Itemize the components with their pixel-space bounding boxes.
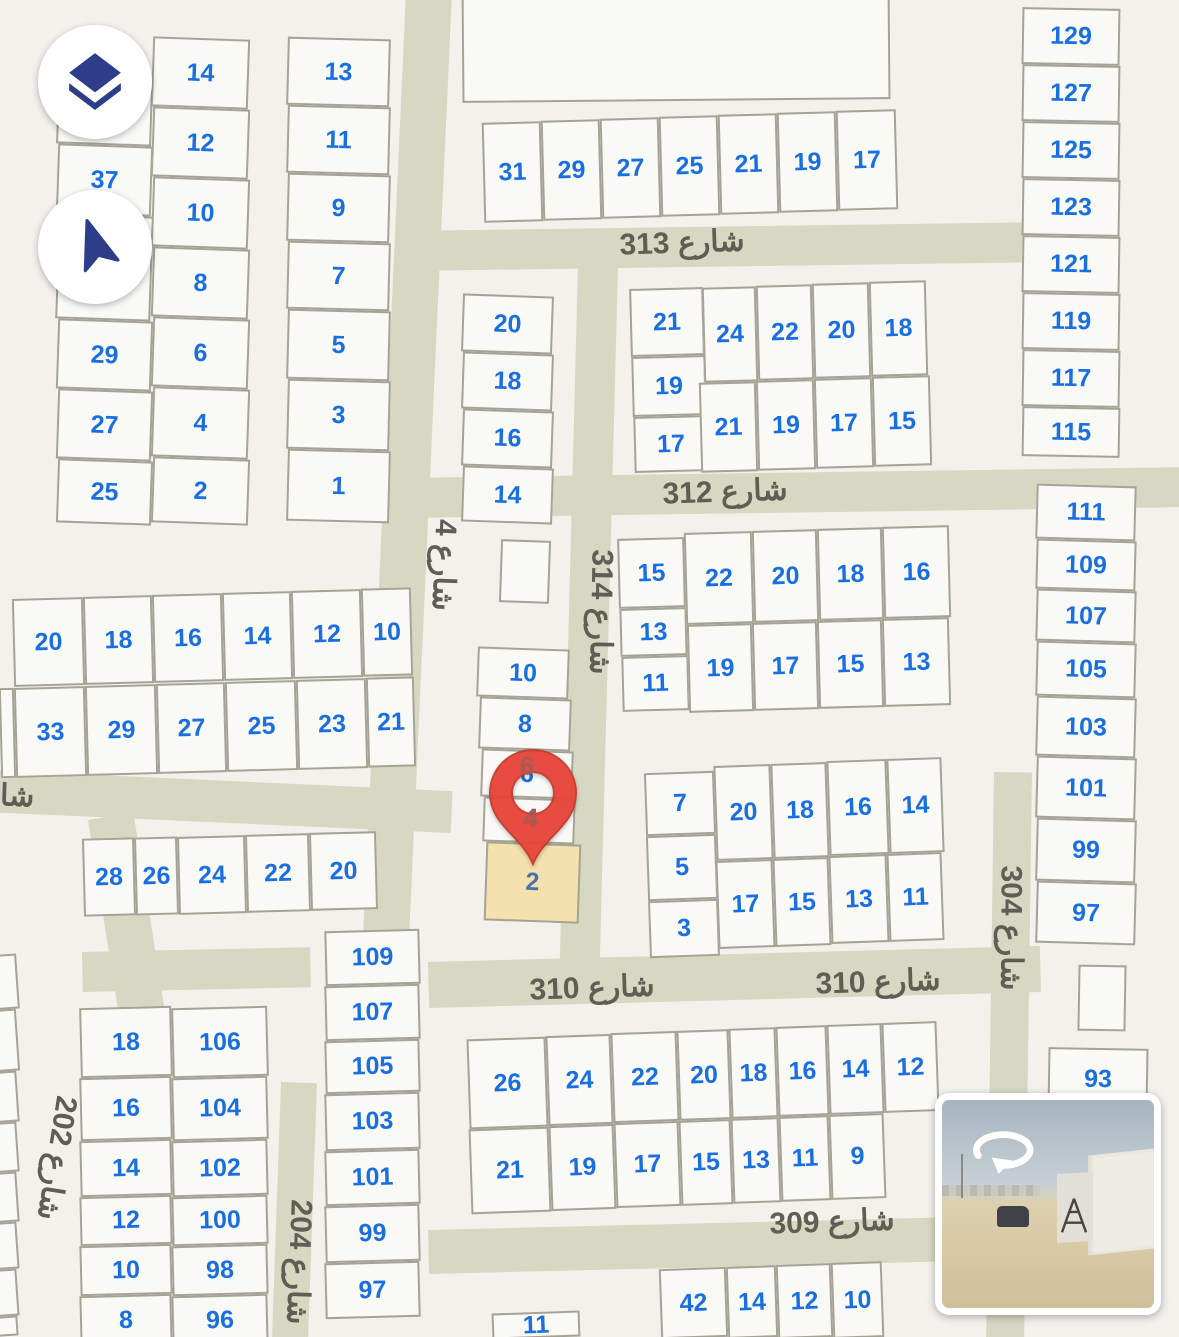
plot-129[interactable]: 129 bbox=[1022, 7, 1121, 66]
plot-unlabeled[interactable] bbox=[0, 953, 20, 1011]
plot-number: 28 bbox=[95, 864, 123, 890]
plot-number: 100 bbox=[199, 1207, 241, 1233]
plot-number: 3 bbox=[677, 916, 692, 941]
plot-number: 96 bbox=[206, 1307, 234, 1333]
plot-number: 4 bbox=[193, 410, 208, 435]
plot-14[interactable]: 14 bbox=[461, 465, 554, 524]
plot-111[interactable]: 111 bbox=[1035, 484, 1136, 542]
plot-number: 19 bbox=[772, 412, 800, 438]
plot-22[interactable]: 22 bbox=[756, 284, 814, 380]
plot-20[interactable]: 20 bbox=[752, 529, 819, 623]
plot-19[interactable]: 19 bbox=[777, 111, 839, 213]
plot-number: 125 bbox=[1050, 138, 1092, 164]
plot-10[interactable]: 10 bbox=[79, 1244, 172, 1296]
plot-15[interactable]: 15 bbox=[817, 619, 884, 709]
plot-number: 13 bbox=[845, 886, 874, 912]
plot-number: 25 bbox=[675, 153, 703, 179]
plot-number: 5 bbox=[675, 855, 690, 880]
plot-number: 20 bbox=[827, 318, 855, 344]
plot-number: 10 bbox=[186, 200, 215, 226]
plot-number: 8 bbox=[518, 711, 533, 736]
plot-number: 10 bbox=[373, 619, 401, 645]
plot-number: 14 bbox=[186, 60, 215, 86]
plot-number: 127 bbox=[1050, 81, 1092, 107]
plot-number: 17 bbox=[853, 147, 881, 173]
plot-119[interactable]: 119 bbox=[1022, 292, 1121, 351]
plot-12[interactable]: 12 bbox=[881, 1021, 939, 1113]
plot-number: 8 bbox=[193, 270, 208, 295]
street-label: شارع 4 bbox=[425, 519, 463, 612]
plot-number: 9 bbox=[331, 195, 346, 220]
plot-5[interactable]: 5 bbox=[646, 834, 718, 901]
plot-number: 26 bbox=[142, 863, 170, 889]
plot-3[interactable]: 3 bbox=[286, 379, 391, 452]
plot-9[interactable]: 9 bbox=[286, 173, 391, 244]
plot-number: 97 bbox=[1072, 900, 1100, 926]
plot-8[interactable]: 8 bbox=[151, 246, 250, 319]
street-label: شارع 313 bbox=[619, 223, 745, 262]
plot-15[interactable]: 15 bbox=[872, 375, 932, 466]
plot-27[interactable]: 27 bbox=[600, 117, 662, 219]
plot-97[interactable]: 97 bbox=[324, 1261, 420, 1319]
plot-number: 2 bbox=[193, 478, 208, 503]
plot-number: 24 bbox=[565, 1067, 594, 1093]
plot-number: 21 bbox=[734, 151, 762, 177]
plot-number: 18 bbox=[112, 1029, 140, 1055]
plot-number: 102 bbox=[199, 1155, 241, 1181]
plot-12[interactable]: 12 bbox=[151, 106, 250, 179]
plot-22[interactable]: 22 bbox=[610, 1031, 679, 1123]
plot-number: 10 bbox=[509, 660, 538, 686]
plot-number: 13 bbox=[639, 619, 667, 645]
plot-number: 93 bbox=[1084, 1066, 1112, 1091]
plot-19[interactable]: 19 bbox=[631, 355, 707, 417]
plot-17[interactable]: 17 bbox=[752, 621, 819, 711]
plot-117[interactable]: 117 bbox=[1022, 349, 1121, 408]
plot-15[interactable]: 15 bbox=[772, 857, 831, 947]
plot-12[interactable]: 12 bbox=[79, 1195, 172, 1246]
plot-96[interactable]: 96 bbox=[171, 1294, 268, 1337]
plot-13[interactable]: 13 bbox=[619, 607, 687, 657]
plot-number: 119 bbox=[1051, 309, 1092, 335]
plot-number: 11 bbox=[325, 127, 352, 153]
plot-number: 20 bbox=[771, 563, 799, 589]
plot-22[interactable]: 22 bbox=[245, 833, 311, 913]
plot-number: 14 bbox=[493, 482, 522, 508]
plot-14[interactable]: 14 bbox=[222, 591, 293, 681]
plot-number: 15 bbox=[888, 408, 916, 434]
plot-2[interactable]: 2 bbox=[151, 456, 250, 525]
plot-number: 99 bbox=[358, 1221, 386, 1247]
plot-unlabeled[interactable] bbox=[0, 1171, 20, 1224]
plot-109[interactable]: 109 bbox=[324, 929, 420, 986]
plot-unlabeled[interactable] bbox=[0, 1221, 20, 1271]
plot-number: 12 bbox=[313, 621, 341, 647]
plot-33[interactable]: 33 bbox=[14, 686, 87, 778]
plot-number: 97 bbox=[358, 1277, 386, 1303]
plot-number: 29 bbox=[107, 717, 135, 743]
plot-unlabeled[interactable] bbox=[0, 1070, 20, 1124]
white-building bbox=[1088, 1149, 1154, 1256]
plot-22[interactable]: 22 bbox=[684, 531, 754, 625]
plot-13[interactable]: 13 bbox=[731, 1117, 782, 1204]
plot-number: 12 bbox=[896, 1054, 925, 1080]
plot-24[interactable]: 24 bbox=[545, 1034, 613, 1126]
plot-number: 21 bbox=[496, 1158, 525, 1184]
plot-127[interactable]: 127 bbox=[1022, 64, 1121, 123]
plot-18[interactable]: 18 bbox=[770, 762, 829, 859]
plot-number: 29 bbox=[90, 342, 119, 368]
plot-26[interactable]: 26 bbox=[466, 1037, 548, 1130]
plot-23[interactable]: 23 bbox=[296, 678, 368, 770]
plot-number: 19 bbox=[706, 655, 734, 681]
plot-number: 121 bbox=[1050, 252, 1092, 278]
plot-8[interactable]: 8 bbox=[478, 696, 572, 751]
a-frame-structure bbox=[1056, 1187, 1092, 1245]
plot-number: 17 bbox=[657, 431, 685, 457]
plot-number: 16 bbox=[174, 625, 202, 651]
plot-number: 1 bbox=[331, 473, 346, 498]
plot-101[interactable]: 101 bbox=[324, 1149, 420, 1206]
street-label: شارع 312 bbox=[662, 472, 788, 511]
plot-number: 103 bbox=[1065, 714, 1107, 740]
plot-number: 107 bbox=[351, 999, 393, 1025]
plot-17[interactable]: 17 bbox=[836, 109, 899, 211]
plot-7[interactable]: 7 bbox=[644, 771, 716, 836]
plot-number: 20 bbox=[729, 800, 758, 826]
plot-16[interactable]: 16 bbox=[775, 1025, 829, 1117]
plot-number: 20 bbox=[34, 629, 62, 655]
plot-99[interactable]: 99 bbox=[1035, 818, 1137, 884]
street-label: شارع 204 bbox=[279, 1199, 318, 1325]
plot-125[interactable]: 125 bbox=[1022, 121, 1121, 180]
plot-number: 14 bbox=[738, 1289, 767, 1315]
plot-11[interactable]: 11 bbox=[621, 655, 689, 712]
plot-14[interactable]: 14 bbox=[79, 1139, 172, 1197]
plot-number: 10 bbox=[843, 1287, 872, 1313]
plot-105[interactable]: 105 bbox=[1035, 641, 1136, 699]
road-310 bbox=[428, 946, 1041, 1008]
streetview-image bbox=[942, 1100, 1154, 1308]
plot-18[interactable]: 18 bbox=[817, 527, 884, 621]
plot-number: 98 bbox=[206, 1257, 234, 1283]
plot-number: 19 bbox=[568, 1155, 597, 1181]
plot-25[interactable]: 25 bbox=[225, 680, 298, 772]
plot-number: 22 bbox=[771, 320, 799, 346]
plot-107[interactable]: 107 bbox=[1035, 589, 1136, 644]
plot-number: 23 bbox=[318, 711, 346, 737]
plot-20[interactable]: 20 bbox=[309, 831, 378, 911]
plot-9[interactable]: 9 bbox=[829, 1113, 887, 1200]
plot-27[interactable]: 27 bbox=[156, 682, 227, 774]
plot-16[interactable]: 16 bbox=[79, 1076, 173, 1141]
parked-car bbox=[997, 1206, 1029, 1227]
plot-18[interactable]: 18 bbox=[83, 595, 154, 685]
plot-17[interactable]: 17 bbox=[614, 1121, 682, 1208]
plot-number: 26 bbox=[493, 1070, 522, 1096]
plot-3[interactable]: 3 bbox=[648, 899, 720, 958]
plot-number: 13 bbox=[902, 649, 930, 675]
plot-unlabeled[interactable] bbox=[0, 1268, 20, 1318]
plot-24[interactable]: 24 bbox=[702, 286, 758, 382]
plot-number: 20 bbox=[329, 858, 357, 884]
plot-number: 11 bbox=[902, 884, 929, 910]
plot-number: 11 bbox=[522, 1312, 549, 1337]
plot-number: 18 bbox=[884, 316, 912, 342]
plot-13[interactable]: 13 bbox=[882, 617, 951, 707]
plot-21[interactable]: 21 bbox=[366, 676, 416, 767]
plot-number: 3 bbox=[331, 402, 346, 427]
plot-12[interactable]: 12 bbox=[291, 589, 363, 679]
plot-number: 101 bbox=[351, 1164, 393, 1190]
plot-number: 11 bbox=[642, 671, 669, 697]
plot-16[interactable]: 16 bbox=[882, 525, 951, 619]
plot-10[interactable]: 10 bbox=[831, 1261, 885, 1337]
plot-number: 18 bbox=[739, 1060, 768, 1086]
plot-31[interactable]: 31 bbox=[482, 121, 544, 223]
plot-number: 18 bbox=[104, 627, 132, 653]
plot-20[interactable]: 20 bbox=[812, 282, 871, 378]
plot-number: 117 bbox=[1051, 366, 1092, 392]
plot-number: 27 bbox=[177, 715, 205, 741]
plot-14[interactable]: 14 bbox=[886, 757, 944, 854]
plot-17[interactable]: 17 bbox=[633, 415, 708, 473]
plot-unlabeled[interactable] bbox=[499, 539, 551, 604]
plot-10[interactable]: 10 bbox=[361, 587, 413, 676]
plot-24[interactable]: 24 bbox=[177, 835, 247, 915]
map-canvas[interactable]: 1412108642372927251311975313129272521191… bbox=[0, 0, 1179, 1337]
plot-4[interactable]: 4 bbox=[151, 386, 250, 459]
pin-overlay-number: 4 bbox=[523, 802, 539, 833]
plot-number: 16 bbox=[493, 426, 522, 452]
plot-109[interactable]: 109 bbox=[1035, 539, 1136, 592]
plot-number: 17 bbox=[731, 891, 760, 917]
plot-21[interactable]: 21 bbox=[699, 381, 758, 472]
plot-number: 24 bbox=[198, 862, 226, 888]
plot-15[interactable]: 15 bbox=[679, 1119, 734, 1206]
plot-number: 20 bbox=[493, 311, 522, 337]
compass-button[interactable] bbox=[38, 190, 152, 304]
plot-19[interactable]: 19 bbox=[549, 1124, 617, 1211]
plot-unlabeled[interactable] bbox=[462, 0, 891, 103]
plot-number: 20 bbox=[690, 1062, 719, 1088]
plot-100[interactable]: 100 bbox=[171, 1195, 268, 1246]
plot-number: 21 bbox=[653, 309, 681, 335]
streetview-thumbnail[interactable] bbox=[935, 1093, 1161, 1315]
plot-number: 129 bbox=[1050, 24, 1092, 50]
plot-number: 19 bbox=[793, 149, 821, 175]
plot-number: 12 bbox=[186, 130, 215, 156]
plot-number: 105 bbox=[351, 1053, 393, 1079]
plot-29[interactable]: 29 bbox=[85, 684, 158, 776]
street-label: شارع 309 bbox=[769, 1202, 895, 1241]
plot-number: 25 bbox=[90, 479, 119, 505]
plot-97[interactable]: 97 bbox=[1035, 881, 1137, 946]
plot-102[interactable]: 102 bbox=[171, 1139, 268, 1197]
plot-13[interactable]: 13 bbox=[828, 854, 889, 944]
plot-number: 14 bbox=[112, 1155, 140, 1181]
plot-number: 24 bbox=[716, 322, 744, 348]
plot-20[interactable]: 20 bbox=[713, 764, 773, 861]
plot-14[interactable]: 14 bbox=[726, 1265, 778, 1337]
plot-number: 2 bbox=[525, 870, 540, 895]
street-label: شار bbox=[0, 778, 35, 815]
navigation-arrow-icon bbox=[64, 214, 126, 281]
plot-99[interactable]: 99 bbox=[324, 1204, 420, 1263]
layers-icon bbox=[65, 50, 125, 115]
plot-number: 109 bbox=[351, 944, 393, 970]
plot-number: 14 bbox=[901, 793, 930, 819]
plot-number: 25 bbox=[247, 713, 275, 739]
plot-17[interactable]: 17 bbox=[715, 859, 775, 949]
plot-11[interactable]: 11 bbox=[286, 105, 391, 176]
road-309 bbox=[428, 1216, 1009, 1274]
plot-107[interactable]: 107 bbox=[324, 984, 420, 1041]
plot-5[interactable]: 5 bbox=[286, 309, 391, 382]
plot-number: 13 bbox=[742, 1148, 771, 1174]
plot-11[interactable]: 11 bbox=[779, 1115, 832, 1202]
street-label: شارع 314 bbox=[582, 549, 619, 675]
plot-42[interactable]: 42 bbox=[659, 1267, 728, 1337]
plot-unlabeled[interactable] bbox=[1077, 965, 1126, 1032]
plot-number: 31 bbox=[498, 159, 526, 185]
plot-number: 18 bbox=[786, 798, 815, 824]
plot-16[interactable]: 16 bbox=[461, 408, 554, 468]
plot-number: 22 bbox=[631, 1064, 660, 1090]
street-view-rotate-icon bbox=[963, 1121, 1044, 1175]
plot-26[interactable]: 26 bbox=[134, 836, 179, 915]
plot-21[interactable]: 21 bbox=[718, 113, 780, 215]
plot-number: 33 bbox=[36, 719, 64, 745]
plot-104[interactable]: 104 bbox=[171, 1076, 269, 1141]
plot-number: 42 bbox=[679, 1290, 708, 1316]
plot-103[interactable]: 103 bbox=[1035, 696, 1137, 759]
plot-unlabeled[interactable] bbox=[0, 1121, 20, 1174]
plot-number: 18 bbox=[836, 561, 864, 587]
plot-number: 12 bbox=[790, 1288, 819, 1314]
plot-unlabeled[interactable] bbox=[0, 1008, 20, 1073]
plot-17[interactable]: 17 bbox=[814, 377, 874, 468]
plot-14[interactable]: 14 bbox=[826, 1023, 884, 1115]
plot-number: 105 bbox=[1065, 656, 1107, 682]
layers-button[interactable] bbox=[38, 25, 152, 139]
plot-number: 13 bbox=[324, 59, 352, 85]
plot-number: 17 bbox=[830, 410, 858, 436]
plot-18[interactable]: 18 bbox=[461, 351, 554, 411]
plot-11[interactable]: 11 bbox=[886, 852, 944, 942]
plot-106[interactable]: 106 bbox=[171, 1006, 269, 1078]
plot-16[interactable]: 16 bbox=[152, 593, 224, 683]
street-label: شارع 310 bbox=[815, 962, 941, 1001]
plot-number: 11 bbox=[791, 1146, 818, 1172]
plot-number: 16 bbox=[112, 1096, 140, 1122]
street-label: شارع 304 bbox=[994, 865, 1029, 990]
plot-number: 17 bbox=[633, 1152, 662, 1178]
plot-19[interactable]: 19 bbox=[687, 623, 754, 713]
plot-number: 103 bbox=[351, 1108, 393, 1134]
plot-123[interactable]: 123 bbox=[1022, 178, 1121, 237]
plot-number: 12 bbox=[112, 1208, 140, 1234]
plot-20[interactable]: 20 bbox=[676, 1029, 731, 1121]
plot-14[interactable]: 14 bbox=[151, 36, 250, 109]
plot-7[interactable]: 7 bbox=[286, 241, 391, 312]
plot-number: 15 bbox=[788, 889, 817, 915]
plot-25[interactable]: 25 bbox=[659, 115, 721, 217]
plot-number: 21 bbox=[377, 709, 405, 735]
plot-unlabeled[interactable] bbox=[0, 1315, 19, 1337]
plot-number: 16 bbox=[788, 1058, 817, 1084]
plot-29[interactable]: 29 bbox=[56, 318, 153, 391]
plot-20[interactable]: 20 bbox=[12, 597, 85, 687]
plot-number: 15 bbox=[692, 1150, 721, 1176]
plot-number: 7 bbox=[673, 791, 688, 816]
plot-10[interactable]: 10 bbox=[151, 176, 250, 249]
plot-27[interactable]: 27 bbox=[56, 388, 153, 461]
plot-number: 17 bbox=[771, 653, 799, 679]
plot-number: 15 bbox=[836, 651, 864, 677]
plot-15[interactable]: 15 bbox=[617, 537, 686, 609]
plot-105[interactable]: 105 bbox=[324, 1039, 420, 1094]
plot-16[interactable]: 16 bbox=[826, 759, 889, 856]
plot-number: 104 bbox=[199, 1095, 241, 1121]
plot-18[interactable]: 18 bbox=[79, 1006, 173, 1078]
plot-12[interactable]: 12 bbox=[776, 1263, 834, 1337]
plot-8[interactable]: 8 bbox=[79, 1294, 172, 1337]
plot-13[interactable]: 13 bbox=[286, 37, 391, 108]
plot-number: 29 bbox=[557, 157, 585, 183]
plot-115[interactable]: 115 bbox=[1022, 406, 1121, 458]
plot-number: 16 bbox=[902, 559, 930, 585]
plot-101[interactable]: 101 bbox=[1035, 756, 1137, 821]
plot-6[interactable]: 6 bbox=[151, 316, 250, 389]
plot-number: 27 bbox=[616, 155, 644, 181]
plot-number: 106 bbox=[199, 1029, 241, 1055]
plot-21[interactable]: 21 bbox=[629, 287, 705, 357]
plot-25[interactable]: 25 bbox=[56, 458, 153, 525]
plot-10[interactable]: 10 bbox=[476, 646, 570, 699]
plot-number: 9 bbox=[850, 1144, 865, 1169]
plot-number: 19 bbox=[655, 373, 683, 399]
plot-18[interactable]: 18 bbox=[728, 1027, 778, 1119]
plot-number: 21 bbox=[714, 414, 742, 440]
plot-11[interactable]: 11 bbox=[492, 1310, 581, 1337]
plot-21[interactable]: 21 bbox=[469, 1127, 552, 1215]
pin-overlay-number: 6 bbox=[519, 750, 535, 781]
plot-number: 15 bbox=[637, 560, 665, 586]
plot-18[interactable]: 18 bbox=[869, 280, 928, 376]
plot-20[interactable]: 20 bbox=[461, 293, 554, 354]
plot-number: 7 bbox=[331, 263, 346, 288]
plot-98[interactable]: 98 bbox=[171, 1244, 268, 1296]
street-label: شارع 310 bbox=[529, 968, 655, 1007]
plot-number: 14 bbox=[841, 1056, 870, 1082]
plot-121[interactable]: 121 bbox=[1022, 235, 1121, 294]
plot-number: 14 bbox=[243, 623, 271, 649]
street-label: شارع 202 bbox=[30, 1094, 84, 1223]
plot-number: 22 bbox=[264, 860, 292, 886]
plot-19[interactable]: 19 bbox=[756, 379, 816, 470]
plot-number: 101 bbox=[1065, 775, 1107, 801]
plot-103[interactable]: 103 bbox=[324, 1092, 420, 1151]
plot-28[interactable]: 28 bbox=[82, 837, 136, 916]
plot-number: 123 bbox=[1050, 195, 1092, 221]
plot-number: 115 bbox=[1051, 419, 1092, 445]
plot-number: 6 bbox=[193, 340, 208, 365]
plot-29[interactable]: 29 bbox=[541, 119, 603, 221]
plot-1[interactable]: 1 bbox=[286, 449, 391, 524]
horizon-buildings bbox=[942, 1185, 1040, 1195]
plot-number: 18 bbox=[493, 369, 522, 395]
